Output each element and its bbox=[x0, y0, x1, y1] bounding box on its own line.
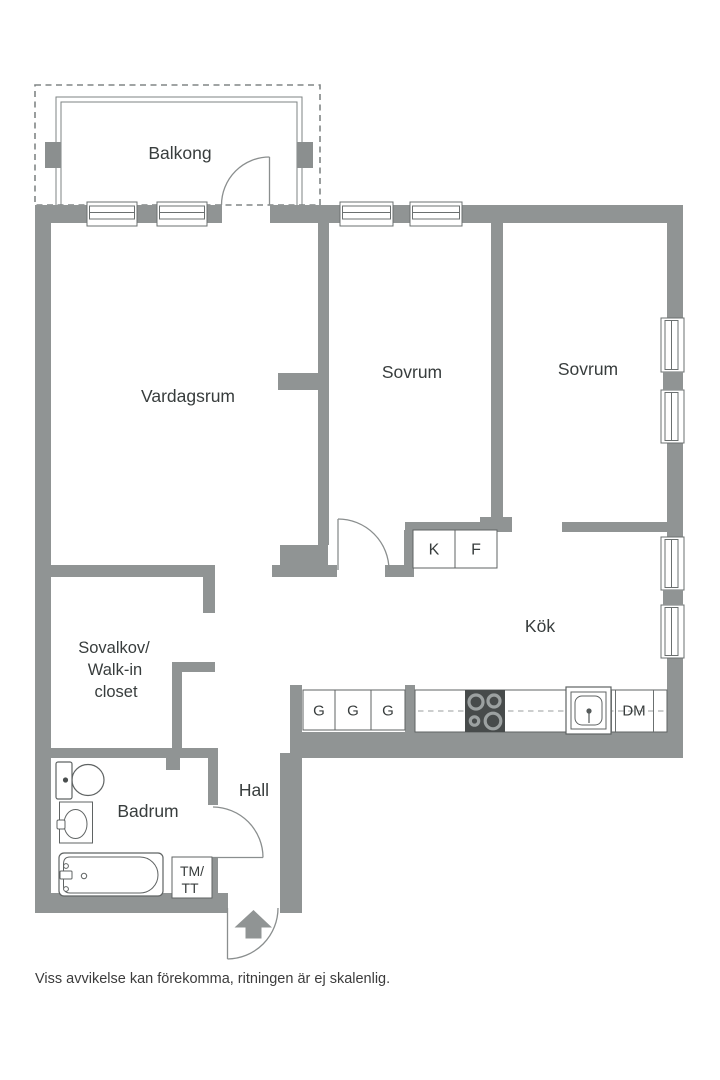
label-bedroom-1: Sovrum bbox=[382, 362, 442, 382]
label-freezer: F bbox=[471, 542, 481, 559]
wall-kitchen-pillar-west bbox=[290, 685, 302, 735]
wall-livingroom-bedroom1 bbox=[318, 223, 329, 545]
window-east-3 bbox=[661, 537, 684, 590]
wall-bathroom-stub bbox=[166, 748, 180, 770]
wall-stub-closet-entry bbox=[203, 577, 215, 613]
wall-kitchen-south bbox=[290, 732, 683, 758]
label-hall: Hall bbox=[239, 780, 269, 800]
balcony-post-right bbox=[297, 142, 313, 168]
bathtub-icon bbox=[59, 853, 163, 896]
label-living-room: Vardagsrum bbox=[141, 386, 235, 406]
wall-hall-east bbox=[280, 753, 302, 913]
label-wardrobe-1: G bbox=[313, 703, 325, 720]
window-east-2 bbox=[661, 390, 684, 443]
wall-kitchen-pillar-mid bbox=[405, 685, 415, 735]
toilet-icon bbox=[56, 762, 104, 799]
kitchen-sink-icon bbox=[566, 687, 611, 734]
window-east-1 bbox=[661, 318, 684, 372]
wall-west bbox=[35, 205, 51, 913]
window-top-1 bbox=[87, 202, 137, 226]
wall-corridor-north-a bbox=[272, 565, 337, 577]
wall-bathroom-east-upper bbox=[208, 758, 218, 805]
wall-bathroom-north bbox=[48, 748, 218, 758]
wall-closet-east bbox=[172, 662, 182, 757]
sink-tap bbox=[586, 708, 591, 713]
stove-icon bbox=[465, 690, 505, 732]
windows bbox=[87, 202, 684, 658]
label-closet-2: Walk-in bbox=[88, 661, 142, 679]
label-wardrobe-2: G bbox=[347, 703, 359, 720]
label-closet-3: closet bbox=[94, 683, 138, 701]
label-closet-1: Sovalkov/ bbox=[78, 639, 150, 657]
wall-livingroom-south bbox=[43, 565, 215, 577]
label-kitchen: Kök bbox=[525, 616, 555, 636]
label-bedroom-2: Sovrum bbox=[558, 359, 618, 379]
label-wardrobe-3: G bbox=[382, 703, 394, 720]
wall-pier-bedroom1 bbox=[280, 545, 328, 567]
bathroom-door bbox=[213, 807, 263, 858]
wall-bedroom1-bedroom2 bbox=[491, 223, 503, 517]
label-fridge: K bbox=[429, 542, 440, 559]
window-top-4 bbox=[410, 202, 462, 226]
window-east-4 bbox=[661, 605, 684, 658]
balcony-door bbox=[222, 157, 270, 205]
floor-plan: Balkong Vardagsrum Sovrum Sovrum Kök Sov… bbox=[0, 0, 720, 1080]
wall-bedroom2-south bbox=[562, 522, 683, 532]
label-washer-2: TT bbox=[181, 880, 199, 896]
wall-top-right bbox=[270, 205, 683, 223]
entrance-arrow-icon bbox=[235, 910, 273, 939]
label-bathroom: Badrum bbox=[117, 801, 178, 821]
window-top-3 bbox=[340, 202, 393, 226]
bedroom1-door bbox=[338, 519, 389, 570]
balcony-post-left bbox=[45, 142, 61, 168]
window-top-2 bbox=[157, 202, 207, 226]
bathroom-sink-icon bbox=[57, 802, 93, 843]
wall-stub-livingroom bbox=[278, 373, 318, 390]
label-washer-1: TM/ bbox=[180, 863, 204, 879]
label-balcony: Balkong bbox=[148, 143, 211, 163]
wall-east bbox=[667, 205, 683, 758]
room-labels: Balkong Vardagsrum Sovrum Sovrum Kök Sov… bbox=[78, 143, 645, 896]
floor-plan-page: Balkong Vardagsrum Sovrum Sovrum Kök Sov… bbox=[0, 0, 720, 1080]
disclaimer-text: Viss avvikelse kan förekomma, ritningen … bbox=[35, 971, 390, 987]
window-spacer-1 bbox=[663, 372, 683, 390]
window-spacer-2 bbox=[663, 590, 683, 605]
label-dishwasher: DM bbox=[622, 703, 645, 720]
